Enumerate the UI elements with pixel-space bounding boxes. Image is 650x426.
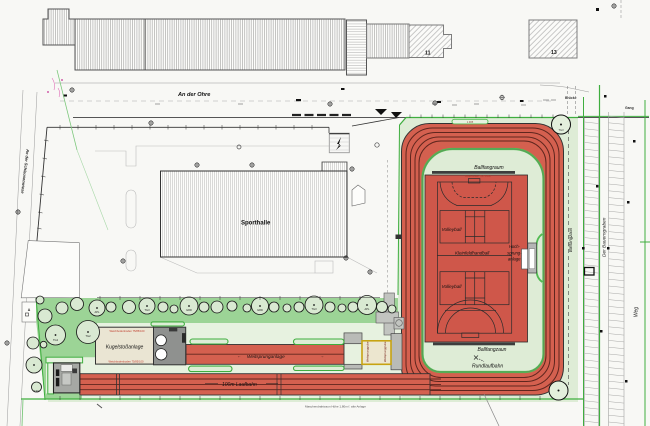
- svg-text:Maschendrahtzaun Höhe 1,80m f.: Maschendrahtzaun Höhe 1,80m f. alte Anla…: [305, 405, 366, 409]
- svg-text:Weitsprunggrube: Weitsprunggrube: [383, 341, 387, 362]
- svg-text:TG3: TG3: [144, 308, 150, 312]
- svg-text:Weitsprunganlage: Weitsprunganlage: [247, 354, 285, 359]
- svg-text:APL: APL: [365, 307, 370, 311]
- svg-text:11: 11: [425, 51, 431, 57]
- svg-text:Sporthalle: Sporthalle: [241, 221, 271, 227]
- svg-text:Ballfangzaun: Ballfangzaun: [478, 347, 507, 353]
- svg-text:Kugelstoßanlage: Kugelstoßanlage: [106, 345, 144, 351]
- svg-text:←: ←: [237, 354, 241, 359]
- svg-text:sprung-: sprung-: [507, 251, 522, 256]
- svg-text:Brücke: Brücke: [565, 96, 577, 100]
- svg-text:100m Laufbahn: 100m Laufbahn: [222, 382, 257, 388]
- svg-text:→: →: [320, 354, 324, 359]
- svg-text:Weg: Weg: [634, 307, 640, 317]
- svg-text:Ballfangraum: Ballfangraum: [474, 165, 503, 171]
- svg-text:An der Ohre: An der Ohre: [177, 92, 210, 98]
- svg-text:Weitsprunggrube: Weitsprunggrube: [366, 341, 370, 362]
- svg-text:TG2: TG2: [53, 338, 59, 342]
- svg-text:CAV: CAV: [34, 389, 39, 393]
- svg-text:APL: APL: [95, 310, 100, 314]
- svg-text:Volleyball: Volleyball: [442, 284, 463, 289]
- svg-text:Der Bauerngraben: Der Bauerngraben: [602, 217, 608, 257]
- svg-text:Gang: Gang: [625, 106, 634, 110]
- svg-text:GRD: GRD: [186, 308, 192, 312]
- svg-text:TG3: TG3: [558, 128, 564, 132]
- svg-text:Weichbodenboden 75/85/100: Weichbodenboden 75/85/100: [108, 360, 144, 364]
- svg-text:Hoch-: Hoch-: [509, 244, 521, 249]
- svg-text:TG2: TG2: [85, 334, 91, 338]
- svg-text:Weichboden 70/75/100: Weichboden 70/75/100: [465, 175, 491, 178]
- svg-text:anlage: anlage: [508, 257, 521, 262]
- svg-text:TG3: TG3: [311, 307, 317, 311]
- svg-text:GRD: GRD: [257, 308, 263, 312]
- svg-text:Kleinfeldhandball: Kleinfeldhandball: [455, 251, 490, 256]
- svg-text:Volleyball: Volleyball: [442, 227, 463, 232]
- svg-text:Rundlaufbahn: Rundlaufbahn: [472, 364, 503, 370]
- svg-text:13: 13: [551, 50, 557, 56]
- svg-text:Weichbodenboden 75/85/100: Weichbodenboden 75/85/100: [109, 329, 145, 333]
- svg-text:1.905: 1.905: [467, 120, 474, 124]
